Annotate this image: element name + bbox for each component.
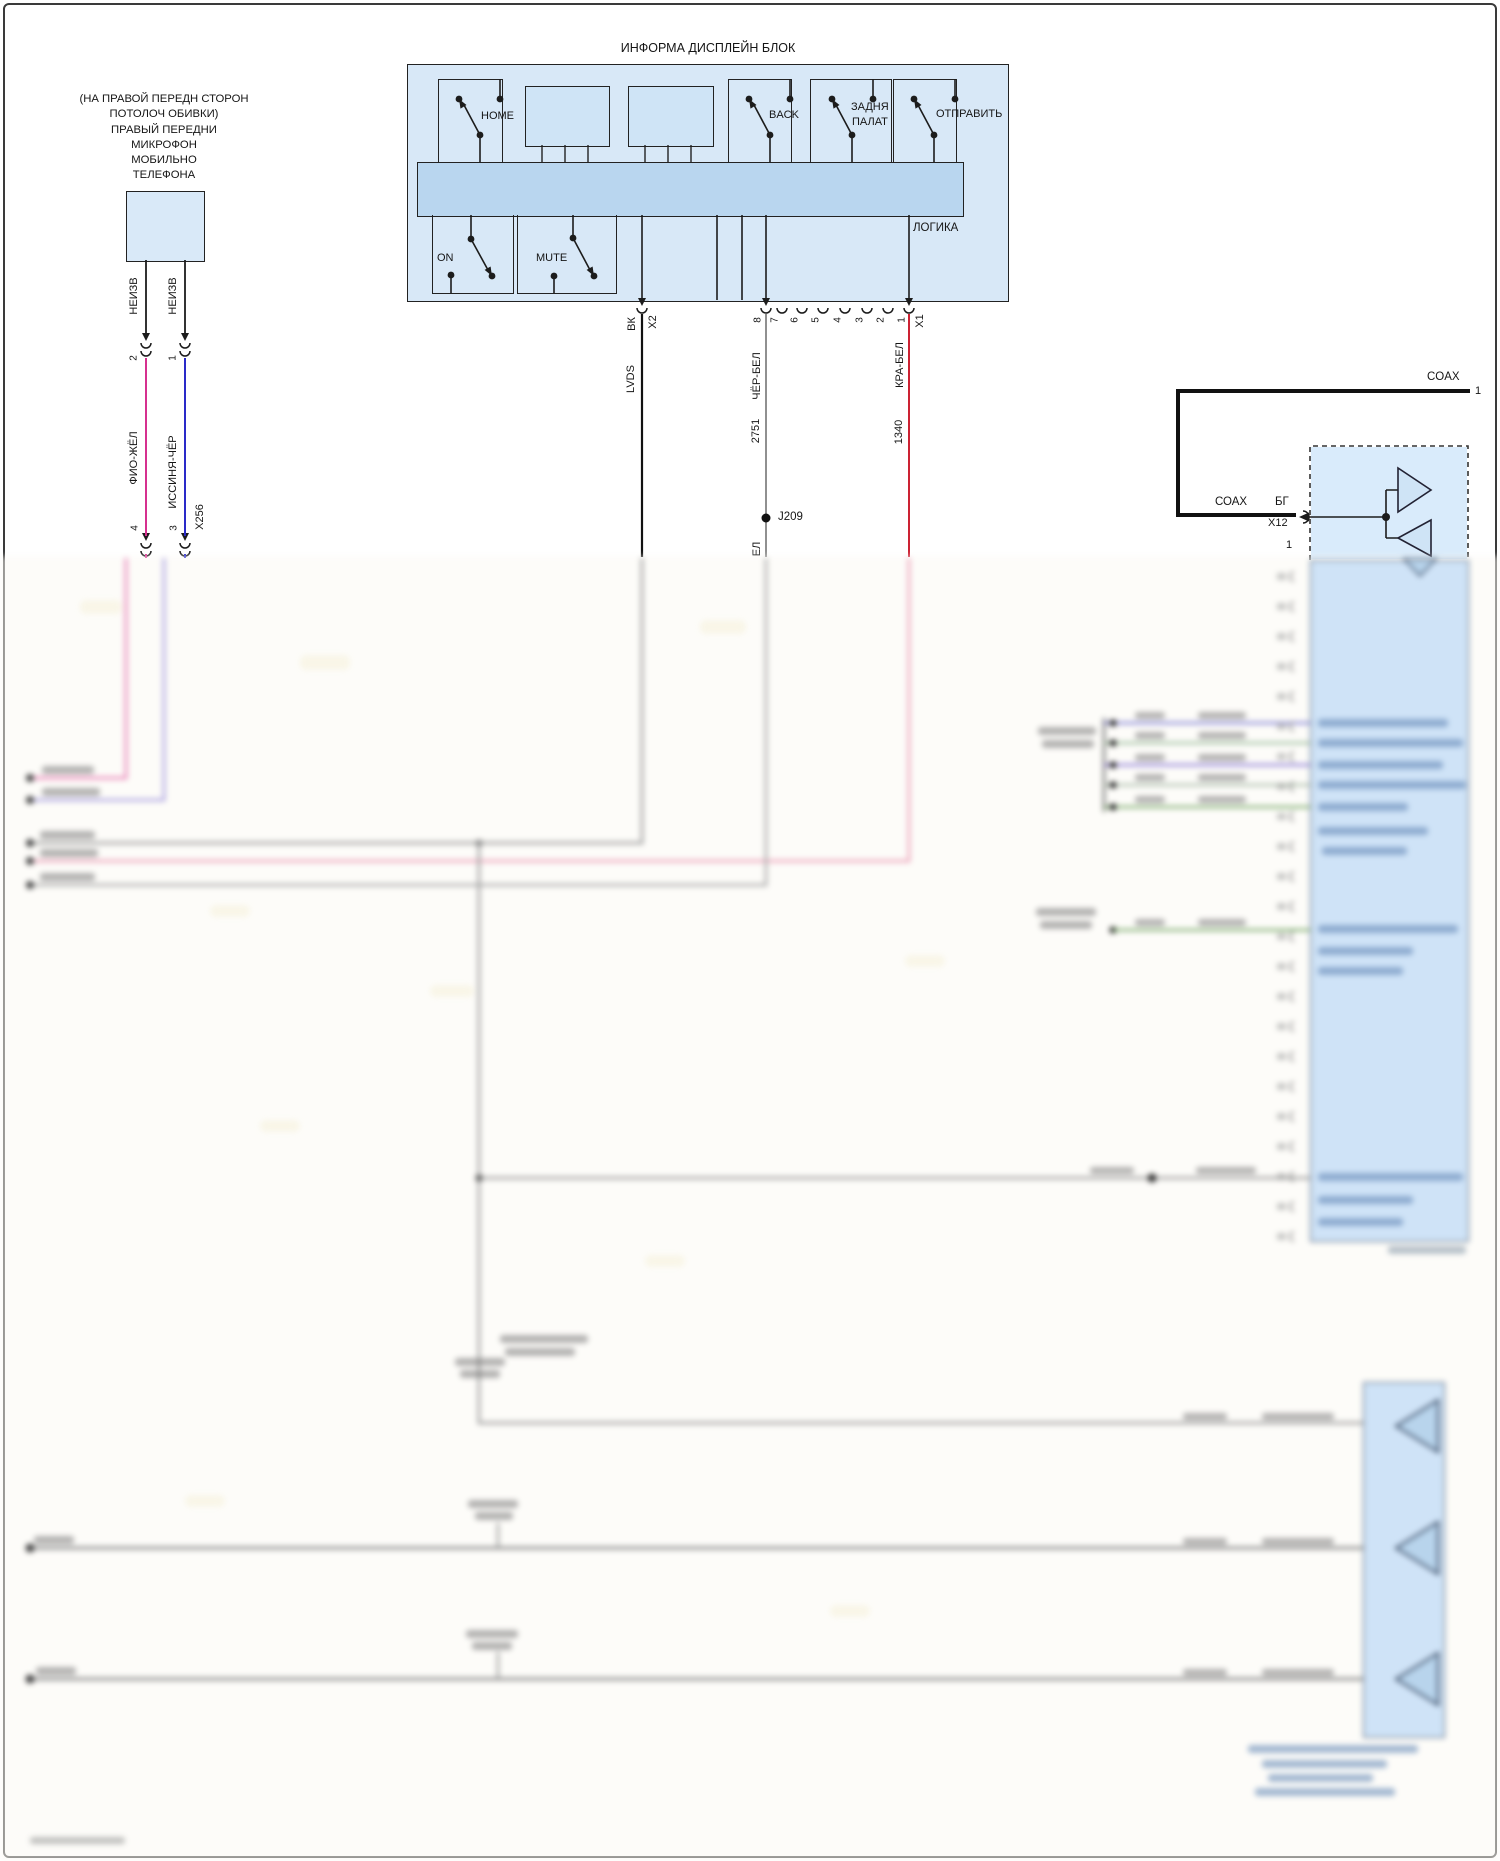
wiring-diagram-page: (НА ПРАВОЙ ПЕРЕДН СТОРОН ПОТОЛОЧ ОБИВКИ)…: [0, 0, 1500, 1861]
blurred-region: [0, 0, 1500, 1861]
blur-tint: [0, 556, 1500, 1861]
bottom-right-module-box: [1363, 1382, 1445, 1738]
right-module-box: [1310, 560, 1469, 1242]
